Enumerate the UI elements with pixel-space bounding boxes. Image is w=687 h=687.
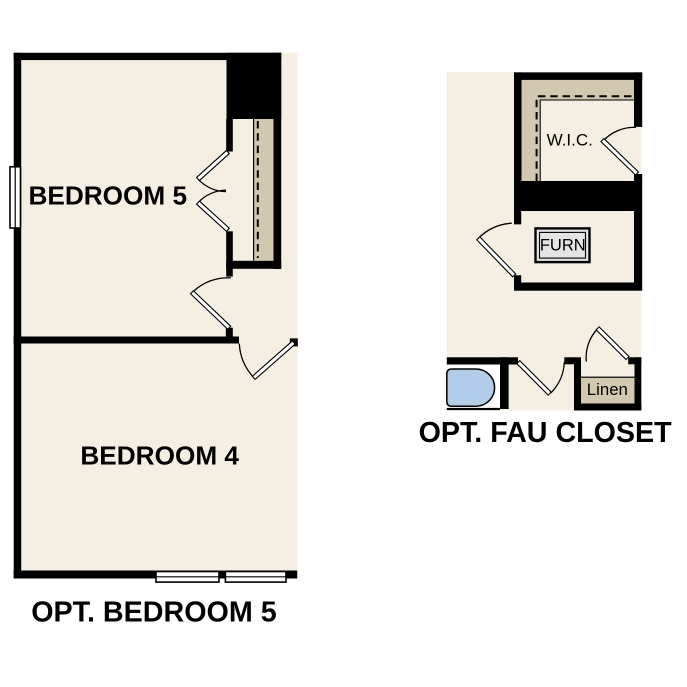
svg-text:OPT. FAU CLOSET: OPT. FAU CLOSET <box>419 417 673 449</box>
svg-text:OPT. BEDROOM 5: OPT. BEDROOM 5 <box>31 597 277 629</box>
svg-text:BEDROOM 4: BEDROOM 4 <box>80 440 239 470</box>
svg-text:Linen: Linen <box>587 380 628 399</box>
svg-text:BEDROOM 5: BEDROOM 5 <box>28 181 187 211</box>
svg-text:W.I.C.: W.I.C. <box>547 130 593 149</box>
svg-text:FURN: FURN <box>540 236 586 254</box>
